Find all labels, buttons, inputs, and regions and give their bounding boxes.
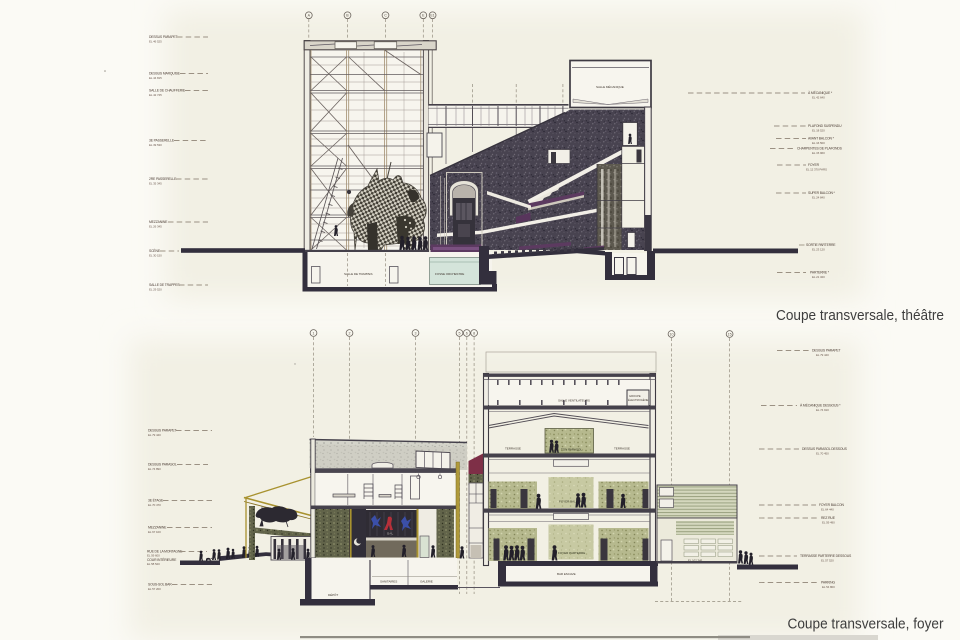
svg-text:EL 30 150: EL 30 150 [149,253,162,257]
svg-text:AVANT BALCON *: AVANT BALCON * [808,137,835,141]
svg-text:EL 46 525: EL 46 525 [149,39,162,43]
svg-text:EL 35 345: EL 35 345 [149,181,162,185]
svg-text:PLAFOND SUSPENDU: PLAFOND SUSPENDU [808,124,842,128]
svg-text:EL 23 120: EL 23 120 [812,247,825,251]
svg-text:EL 70 450: EL 70 450 [816,451,829,455]
svg-text:5: 5 [459,331,461,335]
svg-text:REZ RUE: REZ RUE [821,516,836,520]
svg-text:GROUPE: GROUPE [629,394,641,398]
svg-text:EL 58 520: EL 58 520 [147,562,160,566]
svg-text:8: 8 [473,331,475,335]
svg-text:SORTIE PARTERRE: SORTIE PARTERRE [806,243,836,247]
svg-text:EL 26 345: EL 26 345 [149,224,162,228]
svg-text:3: 3 [415,331,417,335]
svg-text:EL 57 200: EL 57 200 [148,587,161,591]
svg-text:SALLE DE TRAPPES: SALLE DE TRAPPES [344,272,372,276]
svg-text:CHARPENTES DE PLAFONDS: CHARPENTES DE PLAFONDS [797,147,843,151]
svg-text:DÉPÔT: DÉPÔT [328,592,338,597]
svg-text:DESSUS MARQUISE: DESSUS MARQUISE [149,72,181,76]
svg-text:MEZZANINE: MEZZANINE [149,220,168,224]
svg-text:TERRASSE PARTERRE DESSOUS: TERRASSE PARTERRE DESSOUS [800,554,852,558]
svg-text:EL 59 490: EL 59 490 [822,520,835,524]
svg-text:15: 15 [728,332,732,336]
svg-text:EL 64 440: EL 64 440 [821,507,834,511]
svg-text:DESSUS PARASOL: DESSUS PARASOL [148,463,177,467]
svg-text:S✓L: S✓L [387,532,394,536]
svg-text:MEZZANINE: MEZZANINE [148,526,167,530]
svg-text:DESSUS PARASOL DESSOUS: DESSUS PARASOL DESSOUS [802,447,848,451]
svg-text:EL 74 910: EL 74 910 [816,408,829,412]
svg-text:1: 1 [313,331,315,335]
svg-text:À MÉCANIQUE *: À MÉCANIQUE * [808,90,833,95]
svg-text:E1: E1 [430,14,434,18]
svg-text:TERRASSE: TERRASSE [614,447,630,451]
svg-text:EL 15 960: EL 15 960 [812,151,825,155]
svg-text:10: 10 [670,332,674,336]
svg-text:EL 18 520: EL 18 520 [812,128,825,132]
svg-text:3E PASSERELLE: 3E PASSERELLE [149,139,175,143]
svg-text:SALLE DE TRAPPES: SALLE DE TRAPPES [149,283,180,287]
svg-text:EL 67 100: EL 67 100 [148,530,161,534]
svg-text:FOSSE ORCHESTRE: FOSSE ORCHESTRE [435,272,464,276]
svg-text:EL 24 840: EL 24 840 [812,195,825,199]
svg-text:SALLE MÉCANIQUE: SALLE MÉCANIQUE [596,84,624,89]
svg-text:DESSUS PARAPET: DESSUS PARAPET [148,429,176,433]
svg-text:EL 16 500: EL 16 500 [812,141,825,145]
svg-text:SALLE VENTILATEURS: SALLE VENTILATEURS [558,399,590,403]
svg-text:EL 42 640: EL 42 640 [812,95,825,99]
svg-text:EL 79 440: EL 79 440 [148,433,161,437]
svg-text:Coupe transversale, foyer: Coupe transversale, foyer [788,616,944,633]
svg-text:EL 79 440: EL 79 440 [816,353,829,357]
svg-text:EL 44 815: EL 44 815 [149,76,162,80]
svg-text:GALERIE: GALERIE [420,580,433,584]
svg-text:SANITAIRES: SANITAIRES [380,580,397,584]
svg-text:SCÈNE: SCÈNE [149,248,161,253]
svg-text:FOYER: FOYER [808,163,820,167]
svg-text:EL 42 745: EL 42 745 [149,93,162,97]
svg-text:SALLE DE CHAUFFERIE: SALLE DE CHAUFFERIE [149,89,186,93]
svg-text:EL 74 890: EL 74 890 [148,467,161,471]
svg-text:DESSUS PARAPET: DESSUS PARAPET [149,35,177,39]
svg-text:2RE PASSERELLE: 2RE PASSERELLE [149,177,177,181]
svg-text:EL 39 530: EL 39 530 [149,143,162,147]
svg-text:EL 21 320: EL 21 320 [812,275,825,279]
svg-text:Coupe transversale, théâtre: Coupe transversale, théâtre [776,307,944,324]
svg-text:TON PARASOL: TON PARASOL [561,448,582,452]
svg-text:EL 70 470: EL 70 470 [148,503,161,507]
svg-text:2: 2 [349,331,351,335]
svg-text:TERRASSE: TERRASSE [505,447,521,451]
svg-text:SOUS-SOL BAR: SOUS-SOL BAR [148,583,172,587]
svg-text:DESSUS PARAPET: DESSUS PARAPET [812,349,840,353]
svg-text:EL 29 520: EL 29 520 [149,287,162,291]
svg-text:EL 54 800: EL 54 800 [822,585,835,589]
svg-text:PARTERRE *: PARTERRE * [810,271,830,275]
svg-text:FOYER PARTERRE: FOYER PARTERRE [558,551,585,555]
svg-text:SUPER BALCON *: SUPER BALCON * [808,191,836,195]
svg-text:6: 6 [466,331,468,335]
svg-text:FOYER BALCON: FOYER BALCON [819,503,844,507]
svg-text:3E ÉTAGE: 3E ÉTAGE [148,498,164,503]
svg-text:EL 57 520: EL 57 520 [821,558,834,562]
svg-text:EL 12 370 PARS: EL 12 370 PARS [806,167,827,171]
svg-text:C: C [384,14,387,18]
svg-text:À MÉCANIQUE DESSOUS *: À MÉCANIQUE DESSOUS * [800,403,841,408]
svg-text:PARKING: PARKING [821,581,835,585]
svg-text:BAR ESCAVE: BAR ESCAVE [557,572,576,576]
